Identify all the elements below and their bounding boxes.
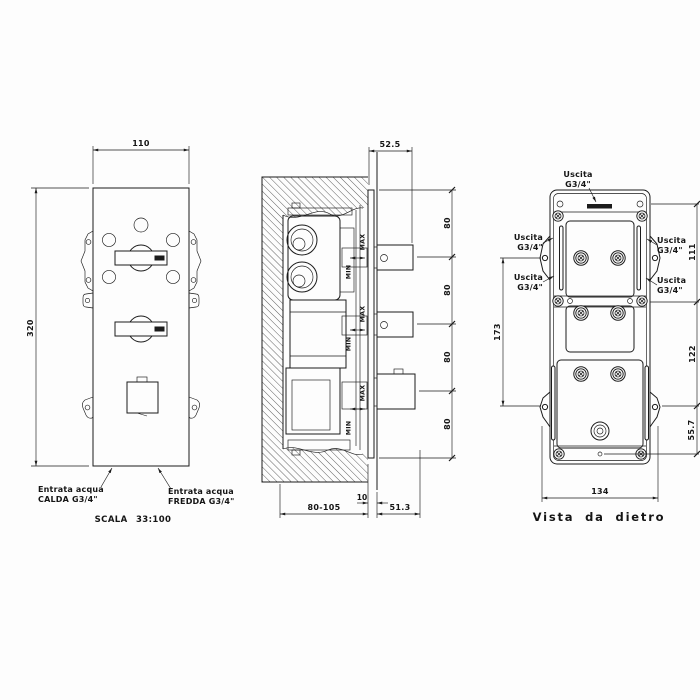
side-slot	[560, 226, 564, 290]
phillips-screw	[613, 369, 623, 379]
phillips-screw	[576, 253, 586, 263]
phillips-screw	[637, 296, 647, 306]
phillips-screw	[637, 211, 647, 221]
outlet-top-line1: Uscita	[563, 170, 592, 179]
dimension-height-320: 320	[26, 188, 89, 466]
wall-hatching	[262, 177, 368, 482]
dim-111: 111	[688, 243, 697, 261]
logo-mark	[155, 256, 164, 260]
phillips-screw	[553, 296, 563, 306]
outlet-lower-left-line2: G3/4"	[517, 283, 543, 292]
rear-view-caption: Vista da dietro	[533, 510, 666, 524]
hot-inlet-label-line1: Entrata acqua	[38, 485, 104, 494]
front-view: 110 320 Entrata acqua CALDA G3/4" Entrat…	[26, 139, 235, 525]
scale-label: SCALA 33:100	[95, 515, 172, 525]
section-view: MAX MIN MAX MIN MAX MIN 52.5	[262, 140, 456, 518]
outlet-upper-right-line1: Uscita	[657, 236, 686, 245]
dim-80-3: 80	[443, 351, 452, 363]
outlet-top-line2: G3/4"	[565, 180, 591, 189]
phillips-screw	[554, 449, 564, 459]
max-label-3: MAX	[360, 385, 367, 402]
side-slot	[645, 366, 649, 440]
dim-80-4: 80	[443, 418, 452, 430]
max-label-2: MAX	[360, 306, 367, 323]
dimension-depth-52-5: 52.5	[369, 140, 412, 243]
technical-drawing-page: 110 320 Entrata acqua CALDA G3/4" Entrat…	[0, 0, 700, 700]
outlet-upper-right-line2: G3/4"	[657, 246, 683, 255]
phillips-screw	[613, 308, 623, 318]
inlet-labels: Entrata acqua CALDA G3/4" Entrata acqua …	[38, 468, 235, 525]
outlet-upper-left-line2: G3/4"	[517, 243, 543, 252]
min-label-1: MIN	[346, 265, 353, 279]
dimension-width-110: 110	[93, 139, 189, 184]
max-label-1: MAX	[360, 234, 367, 251]
phillips-screw	[576, 308, 586, 318]
logo-mark	[155, 327, 164, 331]
valve-body-section	[286, 203, 367, 455]
side-slot	[637, 226, 641, 290]
outlet-lower-right-line2: G3/4"	[657, 286, 683, 295]
dim-173: 173	[493, 323, 502, 341]
phillips-screw	[576, 369, 586, 379]
min-label-3: MIN	[346, 421, 353, 435]
thermostatic-mixer-drawing: 110 320 Entrata acqua CALDA G3/4" Entrat…	[0, 0, 700, 700]
top-outlet-port	[587, 204, 612, 209]
dim-80-2: 80	[443, 284, 452, 296]
outlet-lower-left-line1: Uscita	[514, 273, 543, 282]
cold-inlet-label-line2: FREDDA G3/4"	[168, 497, 235, 506]
outlet-upper-left-line1: Uscita	[514, 233, 543, 242]
handles-section	[374, 245, 415, 409]
dim-10: 10	[357, 493, 367, 502]
dim-55-7: 55.7	[687, 420, 696, 441]
dim-80-1: 80	[443, 217, 452, 229]
side-slot	[552, 366, 556, 440]
dim-134: 134	[591, 487, 609, 496]
dim-51-3: 51.3	[390, 503, 411, 512]
phillips-screw	[553, 211, 563, 221]
dim-110: 110	[132, 139, 150, 148]
cold-inlet-label-line1: Entrata acqua	[168, 487, 234, 496]
dimension-projection-51-3: 51.3	[377, 450, 420, 518]
dim-320: 320	[26, 319, 35, 337]
min-label-2: MIN	[346, 337, 353, 351]
dim-52-5: 52.5	[380, 140, 401, 149]
dim-80-105: 80-105	[308, 503, 341, 512]
rear-view: Uscita G3/4" Uscita G3/4" Uscita G3/4" U…	[493, 170, 700, 524]
dim-122: 122	[688, 345, 697, 363]
outlet-lower-right-line1: Uscita	[657, 276, 686, 285]
hot-inlet-label-line2: CALDA G3/4"	[38, 495, 98, 504]
mounting-plate	[368, 152, 377, 490]
phillips-screw	[613, 253, 623, 263]
